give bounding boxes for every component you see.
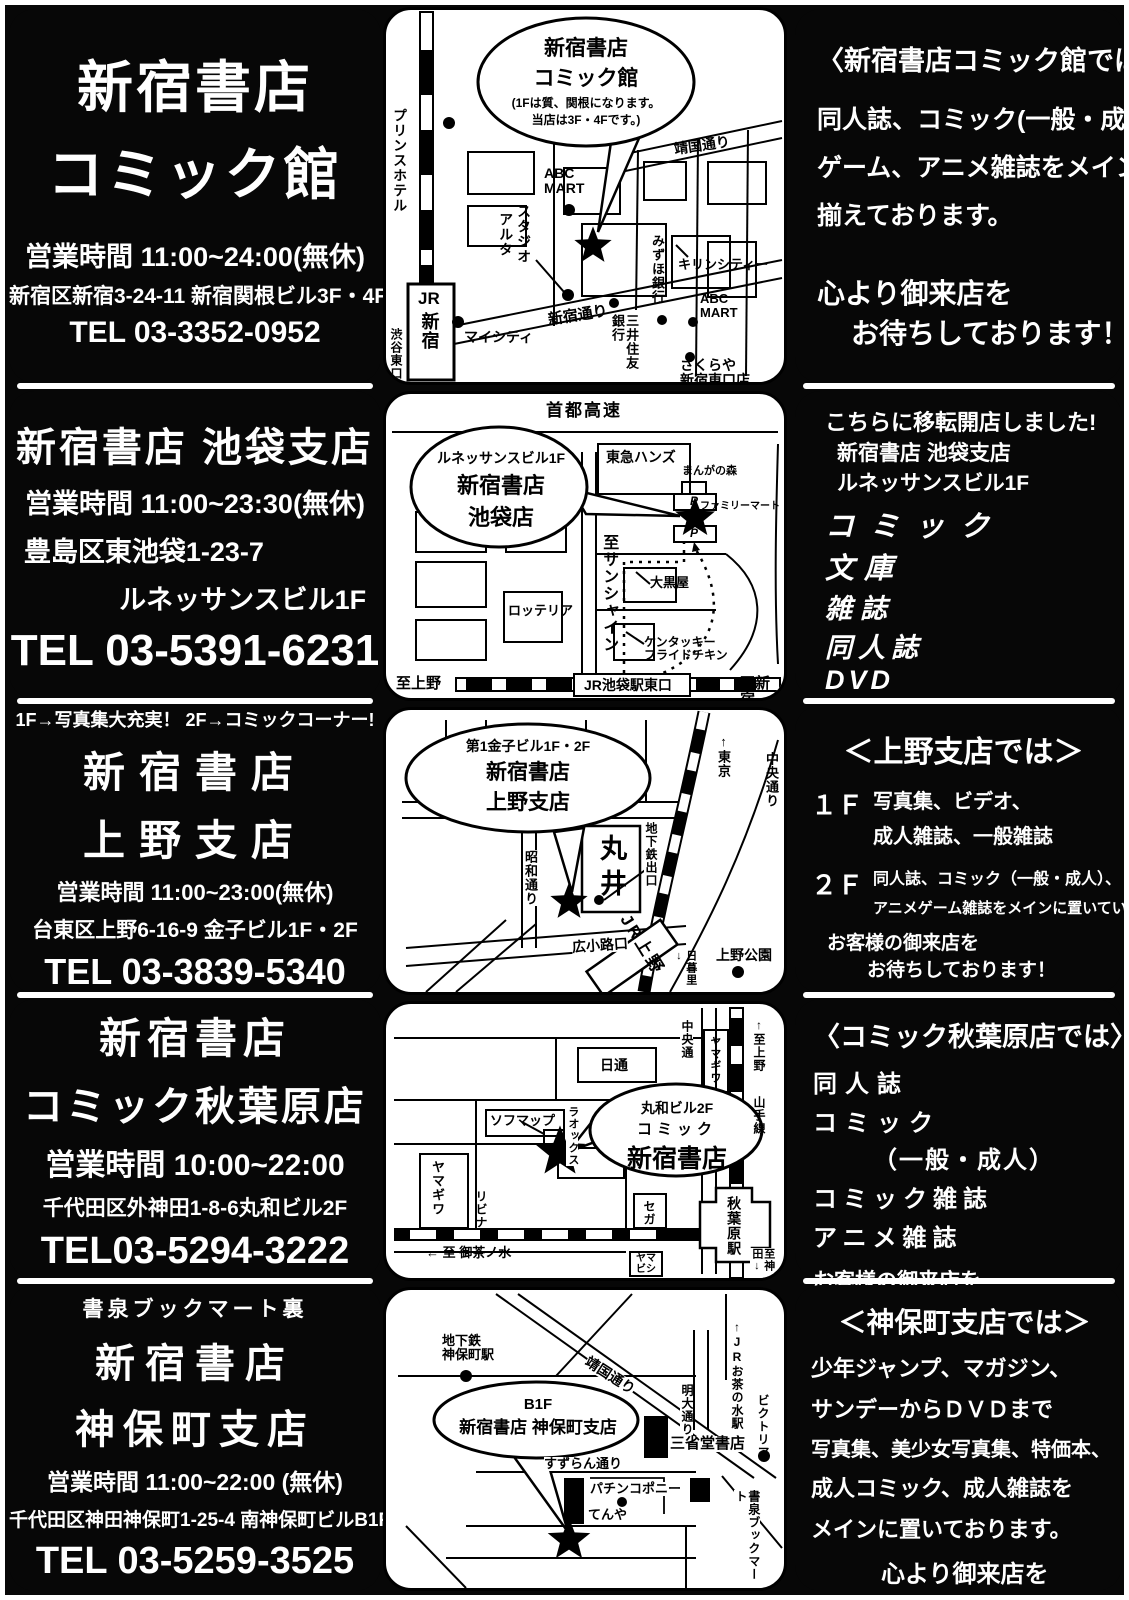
map-label-to-ueno: 至上野 [396,676,441,692]
floor2-text: アニメゲーム雑誌をメインに置いています。 [873,897,1129,918]
balloon-tail [598,136,640,232]
map-label-parking-1: P [690,495,698,508]
map-label-parking-2: P [690,527,698,540]
floor-label-2f: ２Ｆ [811,865,863,918]
info-heading: ＜神保町支店では＞ [811,1301,1118,1341]
divider [17,992,373,998]
info-closing-line1: お客様の御来店を [811,928,1116,955]
balloon-text: 新宿書店 コミック館 (1Fは質、関根になります。 当店は3F・4Fです。) [478,32,694,128]
divider [17,698,373,704]
info-item: コミック雑誌 [813,1179,1116,1214]
map-label-sanseido: 三省堂書店 [670,1436,745,1452]
info-item: 同人誌 [813,1064,1116,1099]
info-box-ikebukuro: こちらに移転開店しました! 新宿書店 池袋支店 ルネッサンスビル1F コミック … [795,391,1122,699]
store-tel: TEL 03-5259-3525 [9,1540,381,1583]
info-heading: 〈コミック秋葉原店では〉 [813,1015,1116,1054]
map-label-lotteria: ロッテリア [508,604,573,618]
balloon-text: 丸和ビル2F コミック 新宿書店 [602,1098,752,1175]
map-label-subway-exit: 地下鉄出口 [644,822,657,887]
floor2-text: 同人誌、コミック（一般・成人）、 [873,865,1129,889]
info-heading: ＜上野支店では＞ [811,727,1116,771]
map-label-abc-mart-2: ABC MART [700,292,738,320]
store-hours: 営業時間 11:00~23:00(無休) [9,875,381,907]
info-item: 雑誌 [825,587,1114,626]
map-ueno: 第1金子ビル1F・2F 新宿書店 上野支店 ↑東京 中央通り 昭和通り 丸井 地… [383,707,787,995]
balloon-text: 第1金子ビル1F・2F 新宿書店 上野支店 [408,736,648,816]
divider [803,992,1115,998]
store-title-line1: 新宿書店 [9,1331,381,1389]
info-intro-line: こちらに移転開店しました! [825,405,1114,437]
map-label-yamabishi: ヤマ ビシ [636,1254,656,1276]
info-item: DVD [825,665,1114,696]
map-label-yamanote-line: 山手線 [752,1096,765,1135]
map-label-jr: JR [418,290,440,308]
info-closing-line2: お待ちしております！ [811,955,1116,982]
info-intro-line: ルネッサンスビル1F [825,467,1114,497]
store-box-akihabara: 新宿書店 コミック秋葉原店 営業時間 10:00~22:00 千代田区外神田1-… [9,999,381,1279]
map-label-to-shinjuku: 至新宿 [740,676,784,701]
store-address: 豊島区東池袋1-23-7 [24,530,366,569]
map-label-to-tokyo: ↑東京 [716,734,730,778]
store-address: 千代田区神田神保町1-25-4 南神保町ビルB1F [9,1505,381,1532]
store-tel: TEL03-5294-3222 [9,1230,381,1273]
map-label-alta: アルタ [498,212,513,257]
map-label-prince-hotel: プリンスホテル [392,108,407,213]
divider [803,1278,1115,1284]
store-address: 新宿区新宿3-24-11 新宿関根ビル3F・4F [9,280,381,310]
map-label-shibuya-east-exit: 渋谷東口 [389,328,402,380]
map-shinjuku: 新宿書店 コミック館 (1Fは質、関根になります。 当店は3F・4Fです。) プ… [383,7,787,385]
map-ikebukuro: 首都高速 ルネッサンスビル1F 新宿書店 池袋店 東急ハンズ まんがの森 ファミ… [383,391,787,701]
info-closing-line1: 心より御来店を [817,272,1108,312]
map-label-yamagiwa-1: ヤマギワ [708,1036,720,1084]
info-body-line: 写真集、美少女写真集、特価本、 [811,1433,1118,1462]
info-box-comic-kan: 〈新宿書店コミック館では〉 同人誌、コミック(一般・成人) ゲーム、アニメ雑誌を… [795,9,1122,383]
map-label-sunshine-direction: 至サンシャイン [600,534,617,653]
store-hours: 営業時間 11:00~24:00(無休) [9,235,381,274]
store-tel: TEL 03-3352-0952 [9,316,381,350]
info-item: アニメ雑誌 [813,1218,1116,1253]
info-box-ueno: ＜上野支店では＞ １Ｆ 写真集、ビデオ、 成人雑誌、一般雑誌 ２Ｆ 同人誌、コミ… [795,705,1122,993]
map-label-chuo-dori: 中央通り [764,752,778,808]
map-label-nippori: 日暮里↓ [672,950,696,992]
floor-label-1f: １Ｆ [811,785,863,849]
store-tel: TEL 03-5391-6231 [9,626,381,676]
map-label-mycity: マイシティ [464,330,533,345]
info-box-akihabara: 〈コミック秋葉原店では〉 同人誌 コミック （一般・成人） コミック雑誌 アニメ… [795,999,1122,1279]
map-label-tokyu-hands: 東急ハンズ [606,450,676,465]
store-title-line2: 神保町支店 [9,1397,381,1455]
info-body-line: メインに置いております。 [811,1512,1118,1544]
store-title-line1: 新宿書店 [9,43,381,124]
store-box-ueno: 1F→写真集大充実！ 2F→コミックコーナー! 新宿書店 上野支店 営業時間 1… [9,705,381,993]
balloon-text: B1F 新宿書店 神保町支店 [438,1396,638,1438]
info-closing-line1: 心より御来店を [811,1554,1118,1589]
map-label-abc-mart-1: ABC MART [544,166,584,196]
map-label-sakuraya: さくらや 新宿東口店 [680,358,750,385]
map-label-ueno-park: 上野公園 [716,948,772,963]
store-title-line2: 上野支店 [9,807,381,868]
info-box-jinbocho: ＜神保町支店では＞ 少年ジャンプ、マガジン、 サンデーからＤＶＤまで 写真集、美… [795,1285,1122,1591]
info-item: コミック [825,503,1114,545]
map-label-mizuho-bank: みずほ銀行 [650,234,664,304]
info-body-line: 同人誌、コミック(一般・成人) [817,100,1108,136]
store-hours: 営業時間 10:00~22:00 [9,1140,381,1184]
star-icon [574,226,611,261]
store-note: 書泉ブックマート裏 [9,1293,381,1323]
store-address: 千代田区外神田1-8-6丸和ビル2F [9,1192,381,1222]
map-akihabara: 中央通 ヤマギワ ↑至上野 山手線 日通 ソフマップ ラオックス 丸和ビル2F … [383,1001,787,1281]
map-label-jr-ochanomizu: ↑JRお茶の水駅 [730,1320,743,1430]
map-jinbocho: 地下鉄 神保町駅 靖国通り ↑JRお茶の水駅 明大通り ビクトリア B1F 新宿… [383,1287,787,1591]
map-label-sega: セガ [642,1200,655,1226]
store-box-jinbocho: 書泉ブックマート裏 新宿書店 神保町支店 営業時間 11:00~22:00 (無… [9,1285,381,1591]
map-label-akihabara-station: 秋葉原駅 [726,1196,741,1256]
map-label-shosen-bookmart: 書泉ブックマート [734,1490,760,1588]
map-label-marui: 丸井 [596,834,625,904]
map-label-nittsu: 日通 [600,1058,628,1073]
store-title-line2: コミック館 [9,130,381,211]
map-label-chuo-dori: 中央通 [680,1020,693,1059]
store-title: 新宿書店 池袋支店 [9,415,381,473]
map-label-mitsui-sumitomo-bank: 三井住友銀行 [610,314,638,382]
map-label-victoria: ビクトリア [756,1394,769,1459]
map-label-kfc: ケンタッキー フライドチキン [644,636,728,662]
map-label-pachinko-pony: パチンコポニー [590,1482,681,1496]
map-label-suzuran-dori: すずらん通り [544,1457,622,1471]
info-closing-line2: お待ちしております！ [817,312,1108,352]
store-tel: TEL 03-3839-5340 [9,951,381,993]
store-hours: 営業時間 11:00~23:30(無休) [9,482,381,521]
store-box-comic-kan: 新宿書店 コミック館 営業時間 11:00~24:00(無休) 新宿区新宿3-2… [9,9,381,383]
map-label-daikokuya: 大黒屋 [650,576,689,590]
info-item: 同人誌 [825,626,1114,665]
map-label-kirin-city: キリンシティー [678,258,768,272]
map-label-subway-jinbocho: 地下鉄 神保町駅 [442,1334,494,1362]
info-body-line: ゲーム、アニメ雑誌をメインに [817,148,1108,184]
store-box-ikebukuro: 新宿書店 池袋支店 営業時間 11:00~23:30(無休) 豊島区東池袋1-2… [9,391,381,699]
store-title-line2: コミック秋葉原店 [9,1074,381,1132]
store-address: 台東区上野6-16-9 金子ビル1F・2F [9,914,381,944]
map-label-shuto-kosoku: 首都高速 [546,402,622,420]
map-label-showa-dori: 昭和通り [523,850,537,906]
map-label-laox: ラオックス [566,1106,578,1166]
store-note: 1F→写真集大充実！ 2F→コミックコーナー! [9,706,381,732]
floor1-text: 成人雑誌、一般雑誌 [873,820,1053,849]
divider [17,1278,373,1284]
info-body-line: サンデーからＤＶＤまで [811,1392,1118,1424]
map-label-to-kanda: 至神田↓ [750,1248,774,1278]
info-body-line: 成人コミック、成人雑誌を [811,1471,1118,1503]
info-item: 文庫 [825,545,1114,587]
info-body-line: 揃えております。 [817,196,1108,232]
map-label-meidai-dori: 明大通り [680,1384,693,1436]
map-label-family-mart: ファミリーマート [700,502,780,513]
info-body-line: 少年ジャンプ、マガジン、 [811,1351,1118,1383]
map-label-jr-ikebukuro-east-exit: JR池袋駅東口 [584,678,672,693]
divider [803,698,1115,704]
map-label-to-ochanomizu: ← 至 御茶ノ水 [426,1246,511,1260]
map-label-studio: スタジオ [516,204,531,264]
info-heading: 〈新宿書店コミック館では〉 [817,39,1108,78]
store-address2: ルネッサンスビル1F [24,578,366,617]
map-label-livina: リビナ [474,1190,487,1229]
flyer-page: 新宿書店 コミック館 営業時間 11:00~24:00(無休) 新宿区新宿3-2… [0,0,1129,1600]
divider [803,383,1115,389]
store-title-line1: 新宿書店 [9,739,381,800]
info-intro-line: 新宿書店 池袋支店 [825,437,1114,467]
map-label-yamagiwa-2: ヤマギワ [430,1160,444,1216]
store-hours: 営業時間 11:00~22:00 (無休) [9,1463,381,1497]
divider [17,383,373,389]
map-label-tenya: てんや [588,1508,627,1522]
info-closing-line2: お待ちしております！ [811,1589,1118,1600]
map-label-to-ueno: ↑至上野 [752,1018,765,1072]
store-title-line1: 新宿書店 [9,1005,381,1066]
info-item: （一般・成人） [813,1140,1116,1175]
railway-blocks [420,50,433,284]
map-label-manga-no-mori: まんがの森 [682,466,737,478]
map-label-shinjuku-station: 新宿 [419,312,438,350]
floor1-text: 写真集、ビデオ、 [873,785,1053,814]
info-item: コミック [813,1103,1116,1138]
balloon-text: ルネッサンスビル1F 新宿書店 池袋店 [416,448,586,532]
map-label-sofmap: ソフマップ [490,1114,555,1128]
